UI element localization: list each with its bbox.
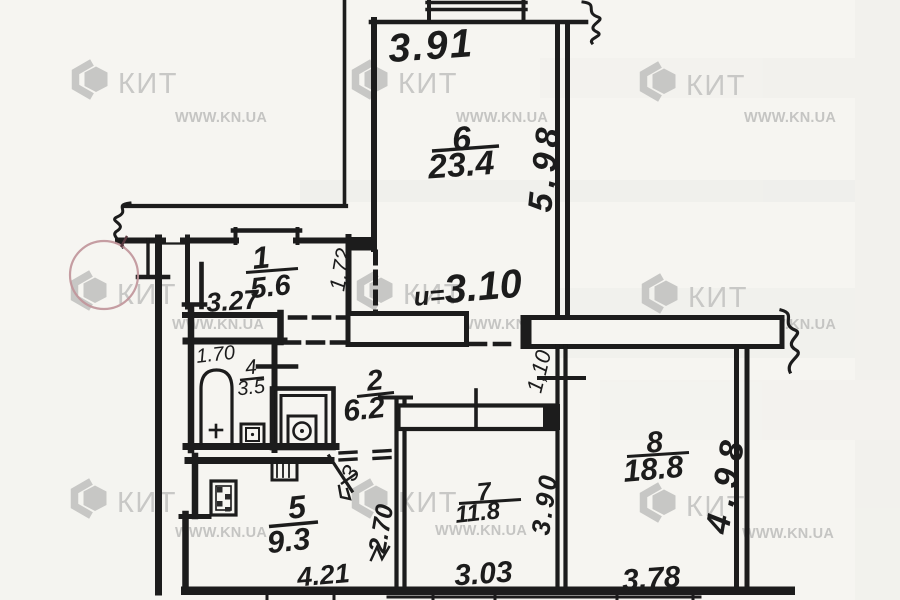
svg-text:3.91: 3.91 xyxy=(387,21,476,71)
svg-text:4.21: 4.21 xyxy=(295,558,351,593)
svg-text:6.2: 6.2 xyxy=(342,391,387,428)
svg-text:3.03: 3.03 xyxy=(453,555,514,592)
svg-text:WWW.KN.UA: WWW.KN.UA xyxy=(742,526,834,542)
svg-text:11.8: 11.8 xyxy=(454,497,502,529)
svg-text:23.4: 23.4 xyxy=(426,144,496,187)
svg-text:3.27: 3.27 xyxy=(205,284,261,318)
svg-text:9.3: 9.3 xyxy=(265,521,312,560)
svg-text:WWW.KN.UA: WWW.KN.UA xyxy=(172,317,264,333)
svg-text:3.5: 3.5 xyxy=(236,375,267,400)
svg-text:1.70: 1.70 xyxy=(195,342,236,368)
svg-text:3.78: 3.78 xyxy=(621,560,682,597)
svg-text:WWW.KN.UA: WWW.KN.UA xyxy=(175,110,267,126)
svg-text:WWW.KN.UA: WWW.KN.UA xyxy=(175,525,267,541)
svg-text:WWW.KN.UA: WWW.KN.UA xyxy=(744,110,836,126)
svg-text:18.8: 18.8 xyxy=(622,449,686,489)
